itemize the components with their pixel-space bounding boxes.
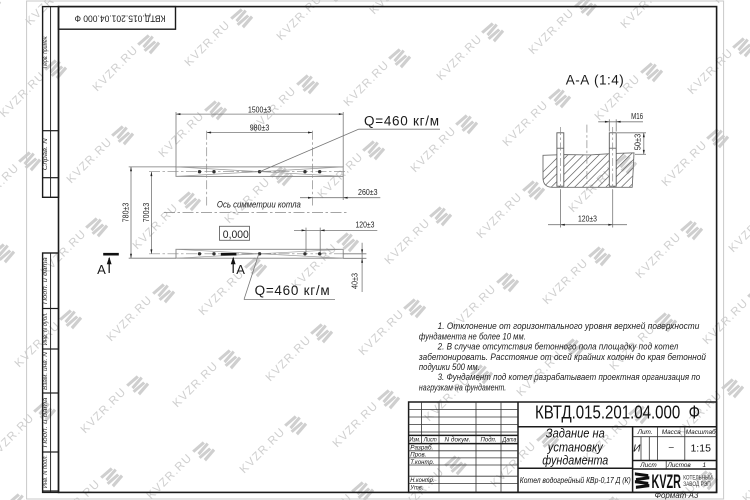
svg-text:Q=460 кг/м: Q=460 кг/м bbox=[255, 283, 330, 298]
svg-text:KVZR.RU: KVZR.RU bbox=[0, 412, 37, 462]
svg-text:КОТЕЛЬНЫЙ: КОТЕЛЬНЫЙ bbox=[683, 474, 713, 482]
svg-text:KVZR.RU: KVZR.RU bbox=[131, 202, 181, 252]
svg-text:KVZR.RU: KVZR.RU bbox=[79, 386, 129, 436]
svg-text:Подп. и дата: Подп. и дата bbox=[42, 397, 49, 448]
svg-text:Q=460 кг/м: Q=460 кг/м bbox=[364, 114, 439, 129]
svg-text:Формат А3: Формат А3 bbox=[655, 491, 699, 500]
svg-text:КВТД.015.201.04.000 Ф: КВТД.015.201.04.000 Ф bbox=[75, 13, 166, 24]
svg-text:N докум.: N докум. bbox=[445, 436, 471, 444]
svg-text:KVZR.RU: KVZR.RU bbox=[409, 125, 459, 175]
svg-text:KVZR.RU: KVZR.RU bbox=[357, 308, 407, 358]
svg-text:ЗАВОД РЭП: ЗАВОД РЭП bbox=[683, 482, 711, 488]
svg-text:980±3: 980±3 bbox=[250, 123, 270, 133]
svg-text:KVZR.RU: KVZR.RU bbox=[0, 70, 48, 120]
svg-text:Лист: Лист bbox=[639, 462, 657, 469]
svg-text:Перв. примен.: Перв. примен. bbox=[42, 35, 49, 68]
svg-text:Пров.: Пров. bbox=[410, 452, 426, 459]
svg-text:KVZR.RU: KVZR.RU bbox=[171, 360, 221, 410]
svg-text:120±3: 120±3 bbox=[356, 219, 375, 229]
svg-text:260±3: 260±3 bbox=[358, 187, 378, 197]
svg-text:M16: M16 bbox=[631, 111, 643, 121]
svg-text:Инв. N подл.: Инв. N подл. bbox=[42, 455, 49, 488]
svg-text:KVZR.RU: KVZR.RU bbox=[527, 7, 577, 57]
svg-text:KVZR.RU: KVZR.RU bbox=[157, 110, 207, 160]
svg-text:700±3: 700±3 bbox=[141, 203, 151, 223]
svg-text:1: 1 bbox=[703, 462, 707, 469]
svg-text:KVZR.RU: KVZR.RU bbox=[435, 33, 485, 83]
svg-text:Н.контр.: Н.контр. bbox=[410, 477, 434, 484]
svg-text:нагрузкам на фундамент.: нагрузкам на фундамент. bbox=[419, 382, 506, 392]
svg-text:KVZR.RU: KVZR.RU bbox=[383, 217, 433, 267]
svg-text:KVZR.RU: KVZR.RU bbox=[53, 478, 103, 500]
svg-text:Утв.: Утв. bbox=[409, 484, 423, 491]
svg-text:KVZR.RU: KVZR.RU bbox=[741, 455, 750, 500]
svg-text:50±3: 50±3 bbox=[633, 134, 643, 151]
svg-text:Дата: Дата bbox=[502, 437, 517, 444]
svg-text:KVZR.RU: KVZR.RU bbox=[686, 47, 736, 97]
svg-text:забетонировать. Расстояние от: забетонировать. Расстояние от осей крайн… bbox=[418, 352, 706, 362]
svg-text:Т.контр.: Т.контр. bbox=[410, 459, 434, 466]
svg-text:KVZR.RU: KVZR.RU bbox=[342, 59, 392, 109]
svg-text:KVZR.RU: KVZR.RU bbox=[264, 334, 314, 384]
svg-text:Задание на: Задание на bbox=[546, 427, 605, 441]
svg-text:KVZR.RU: KVZR.RU bbox=[65, 136, 115, 186]
svg-text:KVZR.RU: KVZR.RU bbox=[541, 257, 591, 307]
svg-text:120±3: 120±3 bbox=[578, 214, 597, 224]
svg-text:фундамента не более 10 мм.: фундамента не более 10 мм. bbox=[419, 331, 526, 341]
svg-text:KVZR: KVZR bbox=[652, 472, 682, 493]
svg-text:Лит.: Лит. bbox=[637, 429, 653, 436]
svg-text:А: А bbox=[97, 262, 106, 277]
svg-text:Подп. и дата: Подп. и дата bbox=[42, 257, 49, 305]
svg-text:КВТД.015.201.04.000 Ф: КВТД.015.201.04.000 Ф bbox=[535, 402, 700, 422]
svg-text:0,000: 0,000 bbox=[223, 229, 249, 241]
svg-text:780±3: 780±3 bbox=[120, 203, 130, 223]
svg-text:KVZR.RU: KVZR.RU bbox=[238, 426, 288, 476]
svg-text:KVZR.RU: KVZR.RU bbox=[660, 139, 710, 189]
svg-text:KVZR.RU: KVZR.RU bbox=[183, 19, 233, 69]
svg-text:Лист: Лист bbox=[423, 437, 437, 444]
svg-text:KVZR.RU: KVZR.RU bbox=[0, 162, 22, 212]
svg-text:KVZR.RU: KVZR.RU bbox=[368, 0, 418, 17]
svg-text:Разраб.: Разраб. bbox=[410, 444, 433, 452]
svg-text:А: А bbox=[236, 262, 245, 277]
svg-text:–: – bbox=[669, 442, 674, 452]
svg-text:Масштаб: Масштаб bbox=[686, 428, 716, 436]
svg-text:KVZR.RU: KVZR.RU bbox=[727, 205, 750, 255]
svg-text:3. Фундамент под котел разраба: 3. Фундамент под котел разрабатывает про… bbox=[438, 372, 701, 382]
svg-text:KVZR.RU: KVZR.RU bbox=[24, 0, 74, 28]
svg-text:KVZR.RU: KVZR.RU bbox=[91, 44, 141, 94]
svg-text:Ось симметрии котла: Ось симметрии котла bbox=[217, 199, 301, 210]
svg-text:1. Отклонение от горизонтально: 1. Отклонение от горизонтального уровня … bbox=[438, 321, 700, 331]
svg-text:фундамента: фундамента bbox=[542, 454, 608, 468]
svg-text:KVZR.RU: KVZR.RU bbox=[701, 297, 750, 347]
svg-text:И: И bbox=[633, 444, 641, 455]
svg-text:установку: установку bbox=[547, 441, 604, 455]
svg-text:Инв. N дубл.: Инв. N дубл. bbox=[42, 312, 49, 345]
svg-text:Подп.: Подп. bbox=[481, 436, 497, 444]
svg-text:1500±3: 1500±3 bbox=[248, 104, 271, 114]
svg-text:А-А (1:4): А-А (1:4) bbox=[566, 73, 625, 88]
svg-text:KVZR.RU: KVZR.RU bbox=[105, 294, 155, 344]
svg-text:Масса: Масса bbox=[662, 429, 681, 436]
svg-text:Взам. инв. N: Взам. инв. N bbox=[42, 351, 49, 390]
svg-text:KVZR.RU: KVZR.RU bbox=[475, 191, 525, 241]
svg-text:Котел водогрейный КВр-0,17 Д (: Котел водогрейный КВр-0,17 Д (К) bbox=[520, 475, 631, 485]
svg-text:KVZR.RU: KVZR.RU bbox=[13, 320, 63, 370]
svg-text:1:15: 1:15 bbox=[690, 443, 711, 455]
svg-text:2. В случае отсутствия бетонно: 2. В случае отсутствия бетонного пола пл… bbox=[437, 342, 679, 352]
svg-text:подушки 500 мм.: подушки 500 мм. bbox=[419, 362, 480, 372]
svg-text:KVZR.RU: KVZR.RU bbox=[331, 400, 381, 450]
svg-text:Справ. N: Справ. N bbox=[42, 138, 49, 171]
svg-text:Листов: Листов bbox=[666, 462, 691, 469]
svg-text:KVZR.RU: KVZR.RU bbox=[634, 231, 684, 281]
svg-text:KVZR.RU: KVZR.RU bbox=[619, 0, 669, 31]
svg-text:40±3: 40±3 bbox=[349, 273, 359, 289]
svg-text:Изм.: Изм. bbox=[410, 437, 421, 444]
svg-text:KVZR.RU: KVZR.RU bbox=[501, 99, 551, 149]
